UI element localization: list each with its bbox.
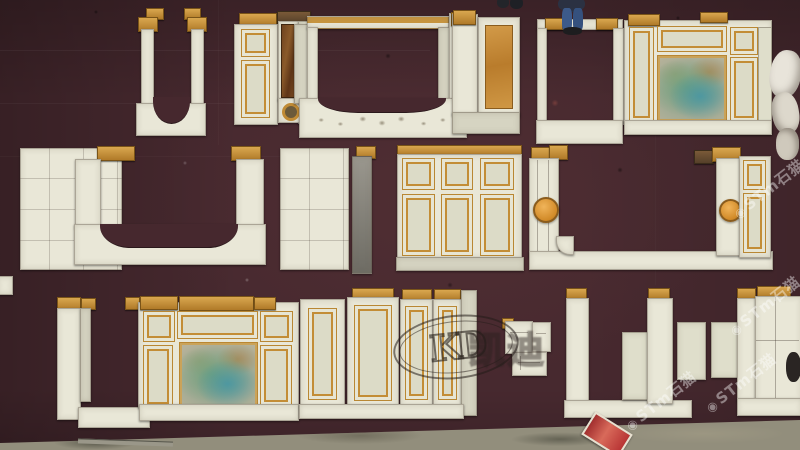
base-rail <box>299 404 464 419</box>
pilaster-strip <box>566 298 589 404</box>
surround-leg <box>236 159 264 229</box>
gold-border-panel <box>441 158 473 190</box>
gold-border-panel <box>730 57 758 122</box>
carpet-seam <box>218 0 219 145</box>
dark-cap <box>694 150 714 164</box>
panel-joint <box>775 297 776 399</box>
apron-arch-opening <box>100 224 238 248</box>
gold-ring-medallion <box>282 103 300 121</box>
gold-border-panel <box>657 26 727 52</box>
base-slab <box>452 112 520 134</box>
panel-joint <box>756 340 799 341</box>
frame-stile <box>537 28 547 125</box>
gold-border-panel <box>402 158 435 190</box>
gold-border-panel <box>402 194 435 256</box>
gold-cap <box>628 14 660 26</box>
dark-object <box>786 352 800 382</box>
mantel-stile <box>307 27 318 102</box>
gold-border-panel <box>441 194 473 256</box>
gold-border-panel <box>260 311 293 342</box>
gold-border-panel <box>260 345 292 406</box>
base-strip <box>624 120 772 135</box>
marble-leg <box>191 29 204 108</box>
gold-border-panel <box>241 29 270 57</box>
pilaster <box>452 14 478 116</box>
gold-border-panel <box>480 158 514 190</box>
frame-stile <box>613 28 624 125</box>
frieze-arch-opening <box>318 98 446 113</box>
person-shoes <box>563 27 582 35</box>
gold-border-panel <box>354 305 392 401</box>
pilaster-strip <box>80 308 91 402</box>
marble-board <box>622 332 648 400</box>
gold-cap <box>97 146 135 161</box>
garland-carving <box>302 112 462 132</box>
gold-cap <box>179 296 254 311</box>
frame-base-slab <box>536 120 623 144</box>
orange-medallion <box>533 197 559 223</box>
gold-cap <box>453 10 476 25</box>
photo-canvas: KD 凯迪 ◉STm石猫 ◉STm石猫 ◉STm石猫 ◉STm石猫 <box>0 0 800 450</box>
grey-strip <box>352 156 372 274</box>
gold-border-panel <box>241 60 270 118</box>
base-rail <box>396 257 524 271</box>
edge-fragment <box>0 276 13 295</box>
green-onyx-inset <box>179 342 258 410</box>
gold-border-panel <box>629 27 654 122</box>
gold-border-panel <box>480 194 514 256</box>
gold-cap <box>254 297 276 310</box>
gold-border-panel <box>177 311 258 339</box>
gold-border-panel <box>143 345 173 408</box>
white-tile-slab <box>280 148 349 270</box>
base-rail <box>139 404 299 421</box>
gold-border-panel <box>308 308 337 400</box>
mantel-top-rail <box>307 16 449 29</box>
carpet-seam <box>0 50 430 51</box>
orange-marble-panel <box>485 25 513 109</box>
gold-cap <box>700 12 728 23</box>
green-onyx-inset <box>657 55 727 122</box>
kd-chinese-watermark: 凯迪 <box>468 320 546 374</box>
base-rail <box>737 398 800 416</box>
gold-border-panel <box>730 27 758 55</box>
gold-cap <box>545 18 563 30</box>
gold-cap <box>140 296 178 310</box>
pilaster-column <box>57 308 81 420</box>
surround-leg <box>75 159 101 229</box>
gold-border-panel <box>143 311 175 342</box>
